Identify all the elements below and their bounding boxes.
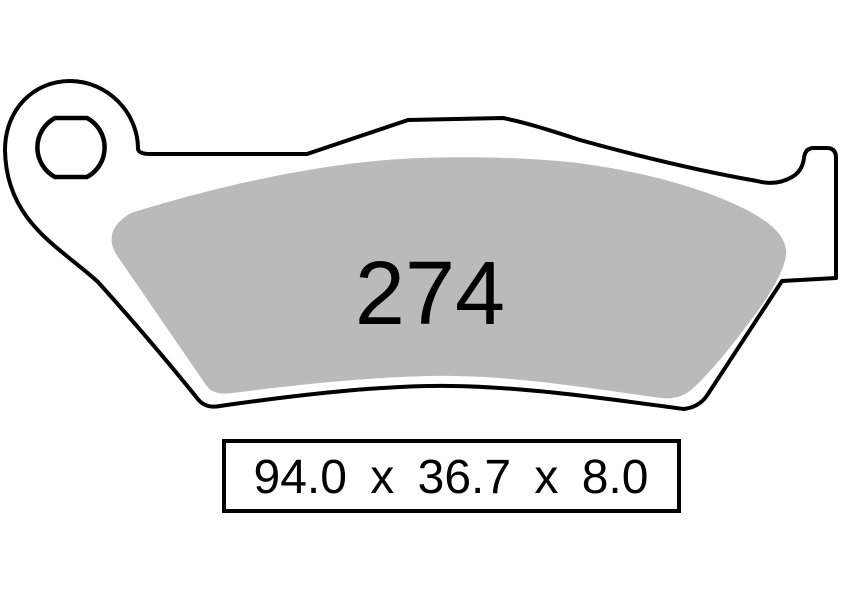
mounting-hole [37, 118, 104, 177]
part-number-label: 274 [355, 244, 505, 344]
brake-pad-drawing: 274 94.0 x 36.7 x 8.0 [0, 0, 842, 595]
brake-pad-diagram: 274 94.0 x 36.7 x 8.0 [0, 0, 842, 595]
dimensions-label: 94.0 x 36.7 x 8.0 [254, 451, 649, 504]
